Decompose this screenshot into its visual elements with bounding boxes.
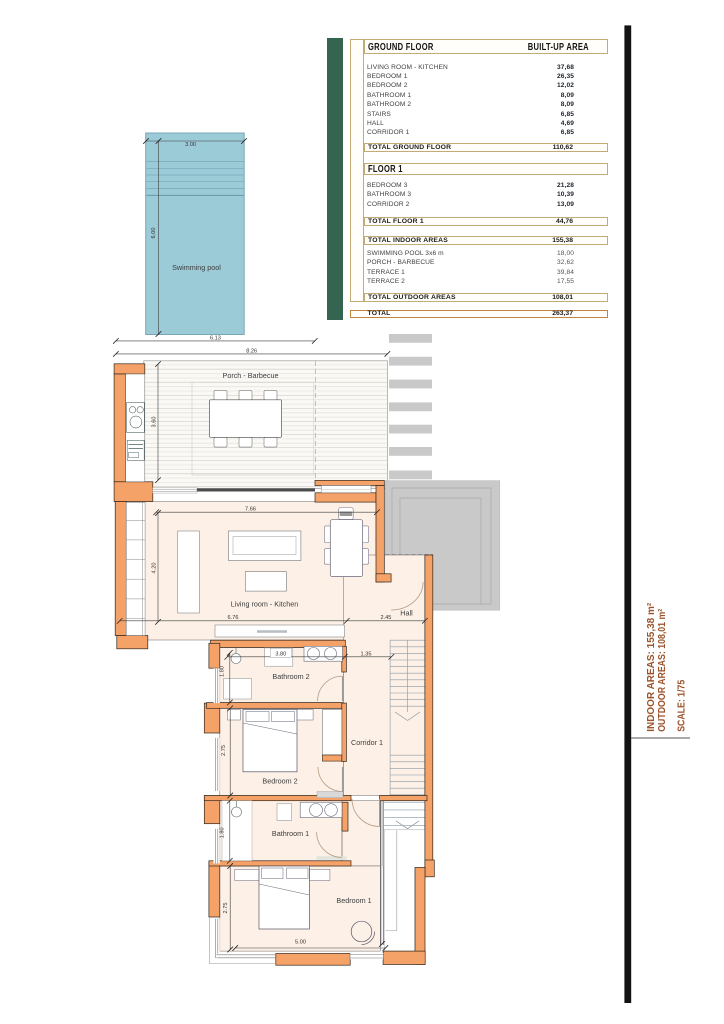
svg-text:Living room - Kitchen: Living room - Kitchen xyxy=(231,599,299,608)
svg-text:3.60: 3.60 xyxy=(152,417,158,428)
svg-text:SCALE: 1/75: SCALE: 1/75 xyxy=(676,679,687,731)
svg-text:6.00: 6.00 xyxy=(151,228,157,239)
svg-text:1.35: 1.35 xyxy=(361,651,372,657)
svg-text:INDOOR AREAS: 155,38 m²: INDOOR AREAS: 155,38 m² xyxy=(646,602,657,732)
svg-text:5.00: 5.00 xyxy=(295,940,306,946)
svg-text:Swimming pool: Swimming pool xyxy=(172,263,221,272)
svg-text:2.75: 2.75 xyxy=(223,903,229,914)
svg-text:6.13: 6.13 xyxy=(210,335,221,341)
svg-text:8.26: 8.26 xyxy=(246,348,257,354)
svg-text:Bathroom 1: Bathroom 1 xyxy=(272,829,309,838)
svg-text:3.80: 3.80 xyxy=(275,651,286,657)
svg-text:2.45: 2.45 xyxy=(380,615,391,621)
svg-text:OUTDOOR AREAS: 108,01 m²: OUTDOOR AREAS: 108,01 m² xyxy=(657,608,668,732)
svg-text:Bedroom 2: Bedroom 2 xyxy=(262,776,297,785)
svg-text:Porch - Barbecue: Porch - Barbecue xyxy=(223,371,279,380)
svg-text:6.76: 6.76 xyxy=(228,615,239,621)
svg-text:3.00: 3.00 xyxy=(185,142,196,148)
svg-text:1.80: 1.80 xyxy=(220,827,226,838)
svg-text:2.75: 2.75 xyxy=(221,745,227,756)
svg-text:Hall: Hall xyxy=(400,608,413,617)
svg-text:4.20: 4.20 xyxy=(152,563,158,574)
svg-text:Bedroom 1: Bedroom 1 xyxy=(336,896,371,905)
svg-text:7.66: 7.66 xyxy=(245,507,256,513)
svg-text:1.80: 1.80 xyxy=(220,666,226,677)
svg-text:Corridor 1: Corridor 1 xyxy=(351,738,383,747)
svg-text:Bathroom 2: Bathroom 2 xyxy=(272,672,309,681)
